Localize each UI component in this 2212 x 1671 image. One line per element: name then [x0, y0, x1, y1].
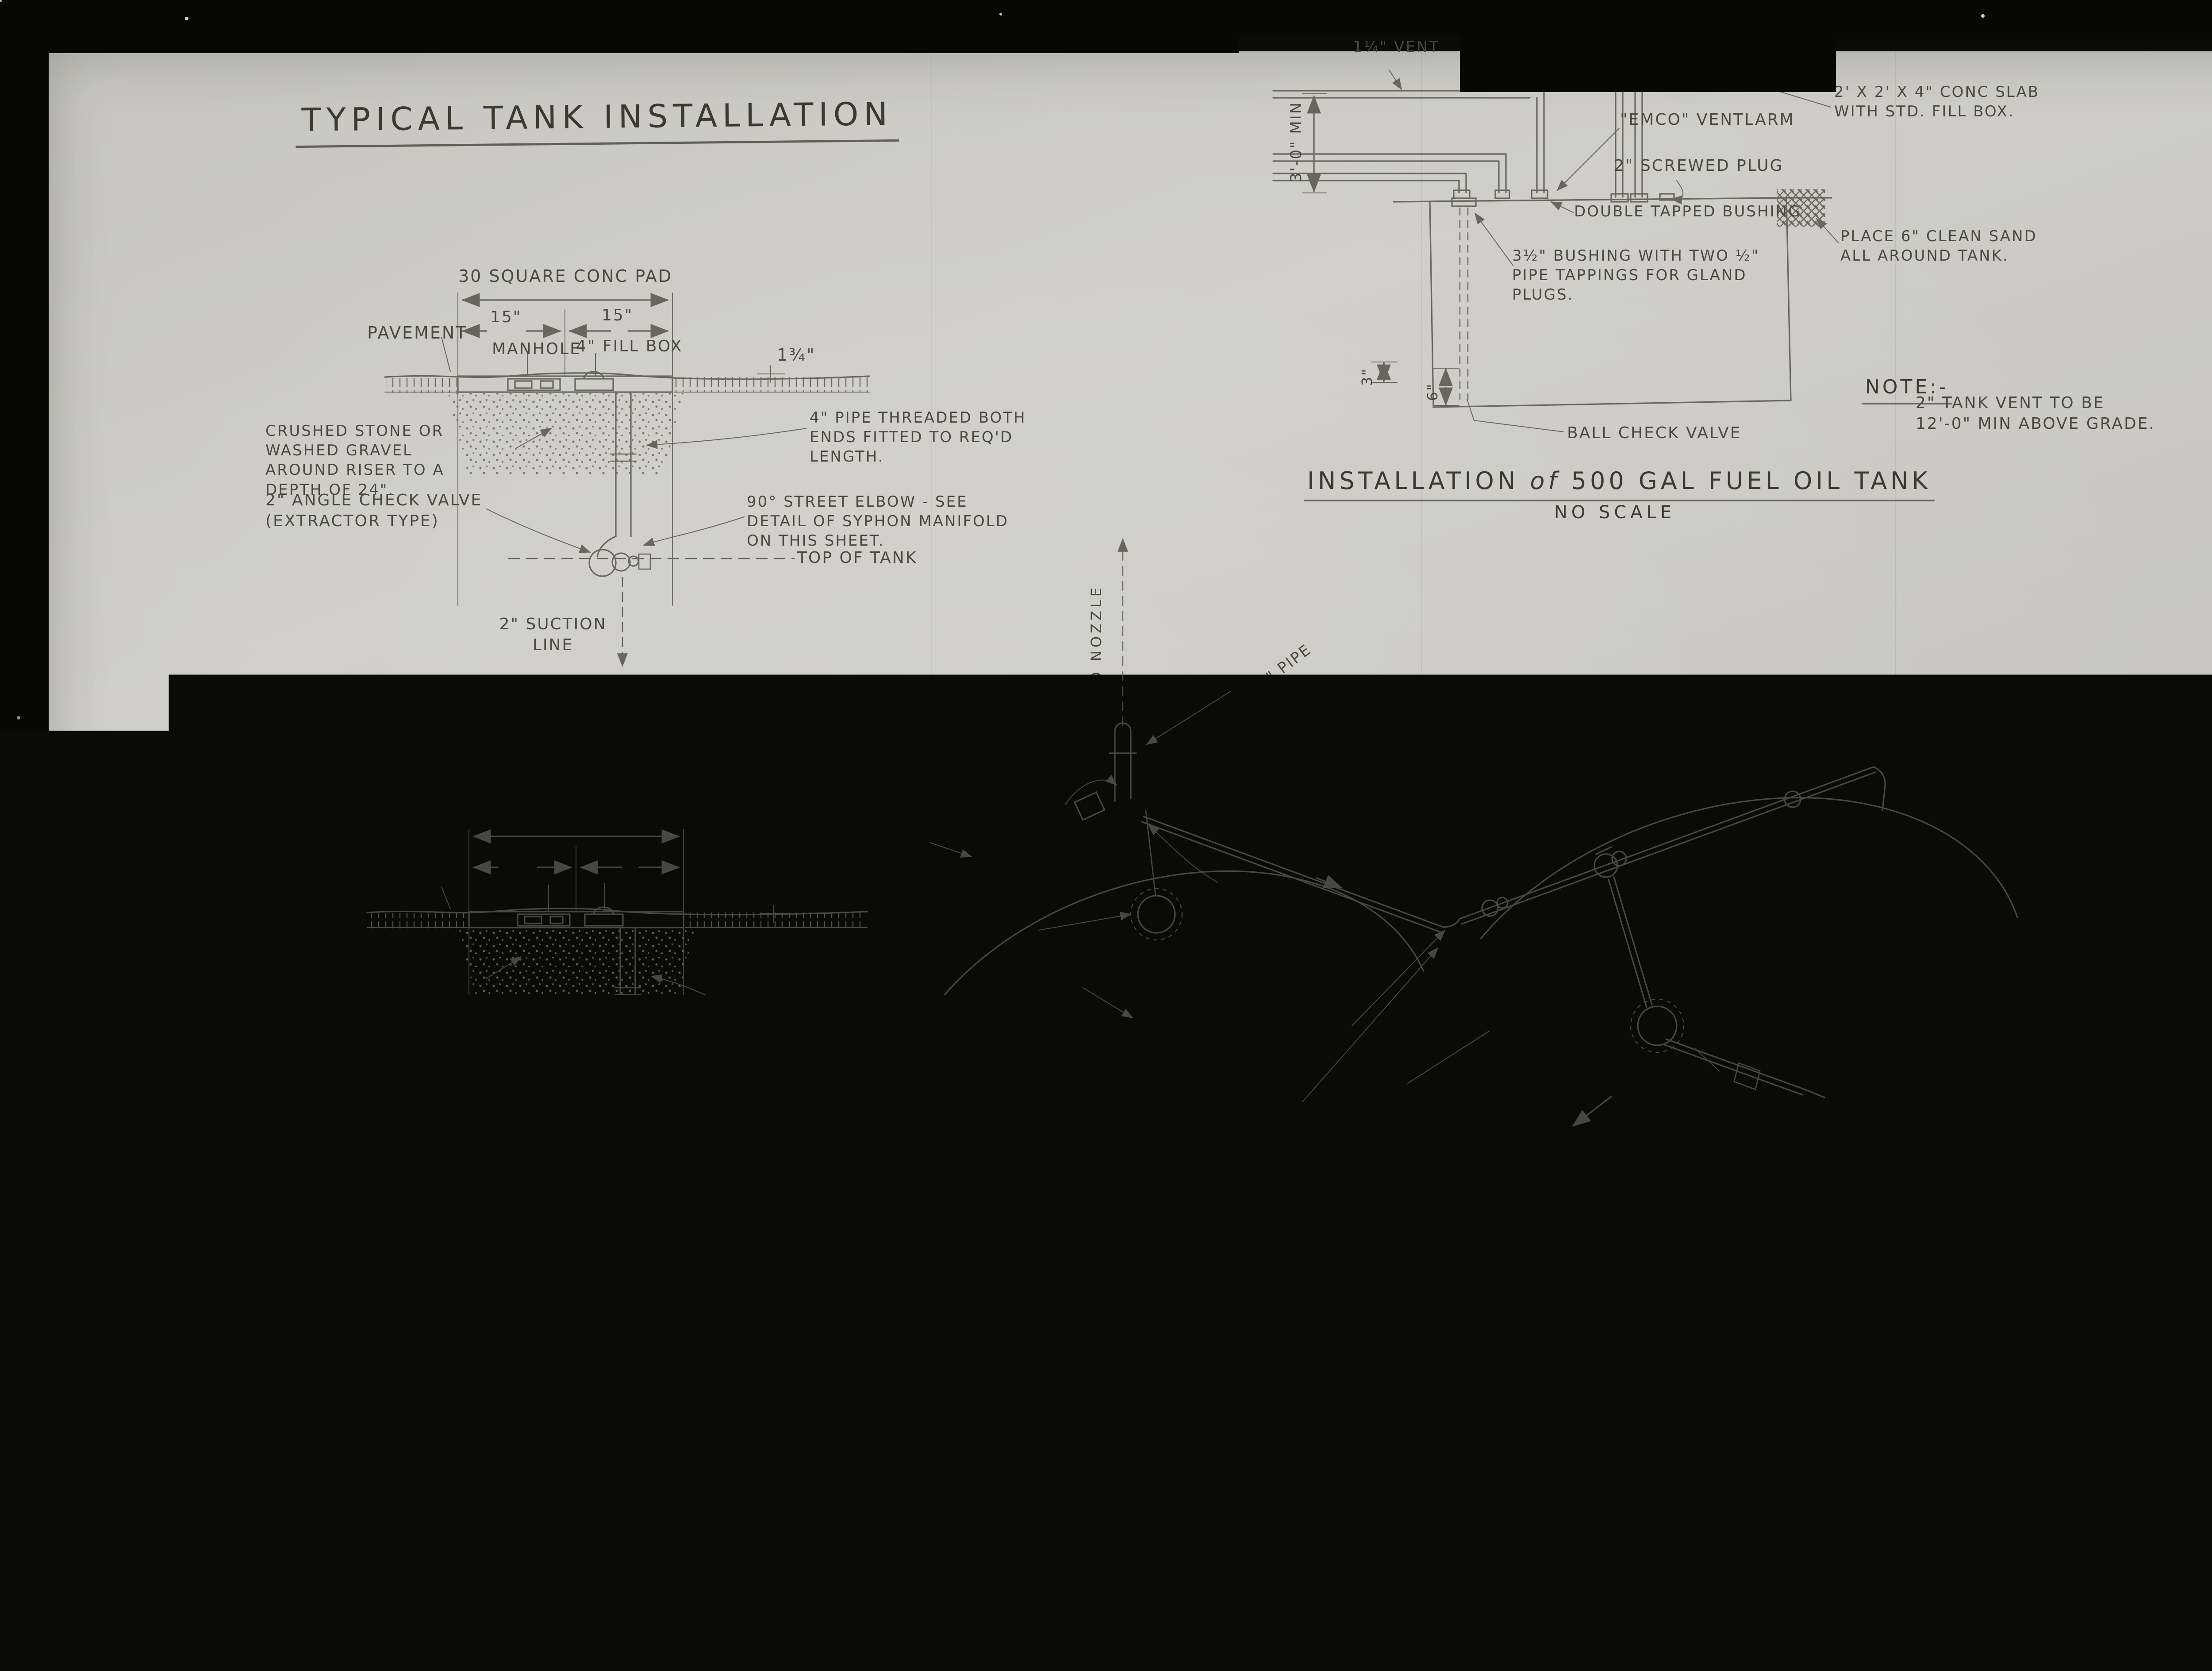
label-street-elbow-note-2: 90° STREET ELBOW - SEE DETAIL OF SYPHON …: [678, 1041, 940, 1100]
label-90-str-elbow-b: 90° STR ELBOW: [1686, 788, 1805, 883]
photo-shadow-bottom-right: [1681, 1452, 2212, 1671]
label-union-2: UNION: [1434, 829, 1490, 877]
label-screwed-plug: 2" SCREWED PLUG: [1614, 156, 1783, 177]
label-fill-cap-2: 4" FILL CAP: [585, 856, 690, 877]
label-double-tapped-bushing: DOUBLE TAPPED BUSHING: [1574, 202, 1801, 221]
label-conc-pad-1: 30 SQUARE CONC PAD: [458, 266, 672, 287]
label-top-of-tank-1: TOP OF TANK: [797, 548, 917, 569]
label-dim-6in: 6": [1424, 383, 1442, 401]
label-top-of-tank-2: TOP OF TANK: [848, 1150, 968, 1170]
label-to-pump-island-1: TO PUMP ISLAND: [897, 853, 980, 929]
label-dim-3in: 3": [1358, 368, 1377, 386]
note-2-num: 2.: [1912, 1322, 1928, 1340]
label-acv-2: 2" ANGLE CHECK VALVE: [1621, 702, 1759, 819]
label-90-str-elbow-mid: 90° STR ELBOW: [1306, 983, 1424, 1079]
label-suction-line-2: 2" SUCTION LINE: [485, 1173, 640, 1194]
note-1-text: FOR TYPES & CATALOG NUMBERS OF VALVES, F…: [1943, 1231, 2212, 1319]
notes-heading: NOTE:-: [1860, 1206, 1954, 1238]
manifold-notes-text: ALL FITTINGS TO BE SCREWED GALV. MALLEAB…: [1282, 1371, 1619, 1413]
label-angle-check-valve-2: 2" ANGLE CHECK VALVE (EXTRACTOR TYPE): [379, 1013, 595, 1054]
note-3-num: 3.: [1910, 1404, 1926, 1421]
label-conc-slab: 2' X 2' X 4" CONC SLAB WITH STD. FILL BO…: [1834, 82, 2039, 121]
sheet-title-left: TYPICAL TANK INSTALLATION: [295, 93, 899, 148]
note-1-num: 1.: [1916, 1231, 1932, 1249]
photo-edge-left: [0, 0, 49, 1671]
label-syphon-line-2: 2" SYPHON LINE TO ADJACENT TANK: [792, 1101, 960, 1140]
label-pipe-note-2: 4" PIPE THREADED BOTH ENDS FITTED TO REQ…: [726, 988, 943, 1047]
photo-edge-top-mid: [1239, 0, 1460, 35]
label-street-elbow-note-1: 90° STREET ELBOW - SEE DETAIL OF SYPHON …: [747, 492, 1009, 551]
main-title-scale: NO SCALE: [486, 1465, 620, 1490]
revision-delta-2: 9: [1908, 1346, 1937, 1373]
label-manhole-1: MANHOLE: [492, 339, 581, 360]
note-2-text: ADDITIONAL STREET ELLS TO BE INSTALLED W…: [1943, 1322, 2212, 1393]
heading-no-syphon-1: ANGLE CHECK VALVE - NO: [362, 718, 815, 758]
label-vent: 1¼" VENT: [1353, 37, 1440, 57]
main-title-line2: ANGLE CHECK VALVE: [366, 1409, 837, 1469]
label-union-3: UNION: [1640, 901, 1695, 950]
revision-delta-3: 9: [1906, 1428, 1935, 1455]
heading-with-syphon-1: ANGLE CHECK VALVE WITH: [373, 1277, 838, 1318]
label-2-pipe-a: 2"Ø PIPE: [1027, 951, 1098, 1011]
photo-edge-top-tank: [1460, 0, 1836, 92]
label-2-pipe-b: 2"Ø PIPE: [1384, 1069, 1454, 1128]
label-pavement-1: PAVEMENT: [367, 322, 468, 344]
label-gland-bushing: 3½" BUSHING WITH TWO ½" PIPE TAPPINGS FO…: [1512, 246, 1759, 305]
label-to-nozzle: TO NOZZLE: [1087, 585, 1106, 695]
tank-title: INSTALLATION of 500 GAL FUEL OIL TANK: [1304, 466, 1935, 501]
heading-with-syphon-2: SYPHON CONNECTION: [411, 1320, 794, 1360]
manifold-scale: NO SCALE: [1216, 1313, 1333, 1334]
label-conc-pad-2: 30" SQUARE CONC PAD: [464, 795, 687, 816]
label-gravel-note-1: CRUSHED STONE OR WASHED GRAVEL AROUND RI…: [265, 421, 445, 500]
photo-edge-top-left: [0, 0, 1239, 53]
heading-no-syphon-2: SYPHON CONNECTION: [397, 759, 780, 800]
label-union-1: UNION: [889, 798, 945, 846]
tank-title-scale: NO SCALE: [1554, 501, 1675, 524]
label-2-90-elbows-left: 2-90° STR ELBOWS: [1001, 772, 1092, 854]
dust-specks: [0, 0, 2, 2]
label-pavement-2: PAVEMENT: [369, 871, 470, 893]
tank-note-text: 2" TANK VENT TO BE 12'-0" MIN ABOVE GRAD…: [1916, 393, 2155, 435]
label-90-str-elbows: 90° STR ELBOW'S: [1503, 766, 1634, 872]
label-ball-check-valve: BALL CHECK VALVE: [1567, 423, 1741, 444]
label-fill-box-1: 4" FILL BOX: [576, 336, 683, 357]
label-thickness-2: 1¾": [779, 884, 818, 906]
label-nipple-2: NIPPLE: [1748, 1105, 1806, 1155]
label-pipe-note-1: 4" PIPE THREADED BOTH ENDS FITTED TO REQ…: [810, 408, 1026, 467]
manifold-title: DETAIL of TYPICAL SYPHON MANIFOLD: [1015, 1271, 1598, 1315]
label-emco-ventlarm: "EMCO" VENTLARM: [1620, 110, 1795, 131]
label-angle-check-valve-1: 2" ANGLE CHECK VALVE (EXTRACTOR TYPE): [265, 490, 482, 532]
drawing-number: S.D.B. 10011 12-47: [186, 1469, 288, 1481]
label-reducer: 2" x 1½" REDUCER-: [1706, 1009, 1851, 1124]
photo-edge-top-right: [1836, 0, 2212, 39]
label-double-tapped-bushing-m: 3½" x 2" DOUBLE TAPPED BUSHING: [1240, 1059, 1382, 1179]
label-dim-15b-1: 15": [602, 305, 633, 326]
label-1-5-pipe: 1½"Ø PIPE:: [1681, 1005, 1769, 1078]
label-clean-sand: PLACE 6" CLEAN SAND ALL AROUND TANK.: [1840, 227, 2037, 266]
label-dim-3ft-min: 3'-0" MIN: [1286, 101, 1306, 182]
label-thickness-1: 1¾": [777, 344, 816, 366]
label-acv-extractable: 2" ANGLE CHECK VALVE - EXTRACTABLE: [1056, 685, 1344, 909]
label-dim-15a-1: 15": [490, 307, 522, 328]
manifold-notes-heading: NOTES:-: [1189, 1364, 1281, 1388]
label-suction-line-1: 2" SUCTION LINE: [499, 614, 607, 656]
label-to-pump-island-2: TO PUMP ISLAND: [1537, 992, 1663, 1093]
